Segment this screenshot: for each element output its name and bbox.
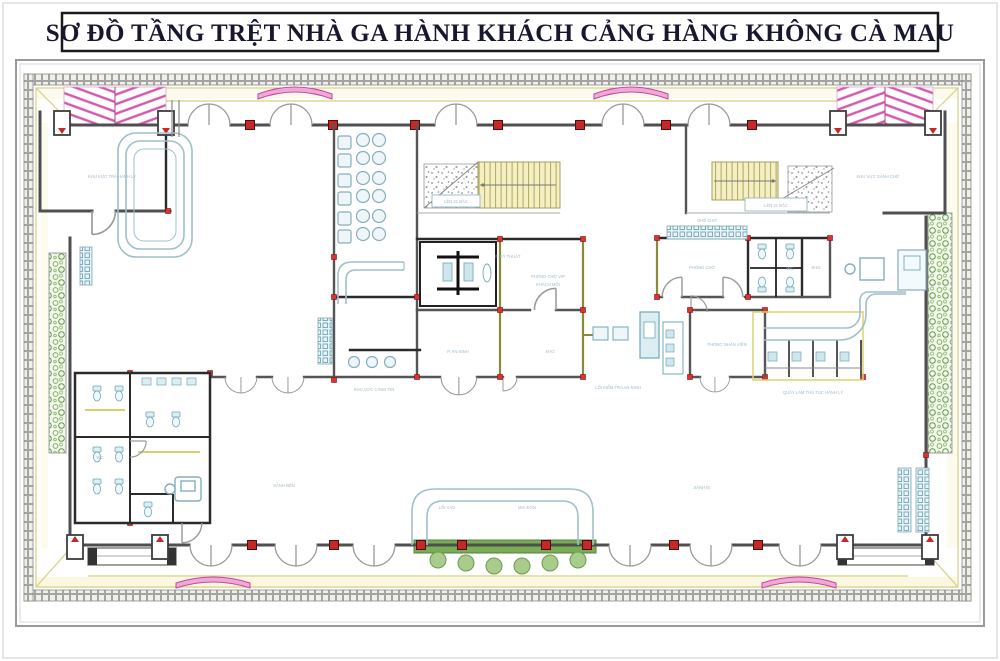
waiting-seats-row [667,226,747,239]
page-title: SƠ ĐỒ TẦNG TRỆT NHÀ GA HÀNH KHÁCH CẢNG H… [46,18,955,47]
floor-plan-page: SƠ ĐỒ TẦNG TRỆT NHÀ GA HÀNH KHÁCH CẢNG H… [0,0,1000,661]
label-vip-lounge-2: KHÁCH MỜI [536,282,560,287]
label-canteen: KHU VỰC CĂNG TIN [354,387,395,392]
label-arrival-hall: SẢNH ĐẾN [273,483,295,488]
label-stair-left: LÊN 21 BẬC [444,199,468,204]
label-canopy: MÁI ĐÓN [518,505,536,510]
label-seats: GHẾ CHỜ [697,218,717,223]
label-security-lane: LỐI KIỂM TRA AN NINH [595,385,641,390]
label-entry: LỐI VÀO [439,505,456,510]
label-wc-right: WC [787,266,794,271]
label-waiting-area: KHU VỰC SẢNH CHỜ [857,174,900,179]
label-lounge: PHÒNG CHỜ [689,265,716,270]
toilets-left [75,373,210,543]
label-baggage-claim: KHU VỰC TRẢ HÀNH LÝ [88,174,136,179]
label-departure-hall: SẢNH ĐI [694,485,711,490]
label-checkin: QUẦY LÀM THỦ TỤC HÀNH LÝ [783,390,843,395]
canopy-hatch-left [64,87,166,124]
canopy-hatch-right [837,87,933,124]
wc-center [420,242,496,306]
label-storage-2: KHO [811,265,821,270]
arrival-seats [80,247,92,285]
label-vip-lounge: PHÒNG CHỜ VIP [531,274,565,279]
floor-plan-drawing: SƠ ĐỒ TẦNG TRỆT NHÀ GA HÀNH KHÁCH CẢNG H… [0,0,1000,661]
label-wc-left: WC [97,455,104,460]
label-stair-right: LÊN 21 BẬC [764,203,788,208]
label-tech-room: P. KỸ THUẬT [495,254,521,259]
label-staff-room: PHÒNG NHÂN VIÊN [707,342,746,347]
label-security-room: P. AN NINH [447,349,469,354]
wc-right [750,238,802,297]
label-storage-1: KHO [545,349,555,354]
